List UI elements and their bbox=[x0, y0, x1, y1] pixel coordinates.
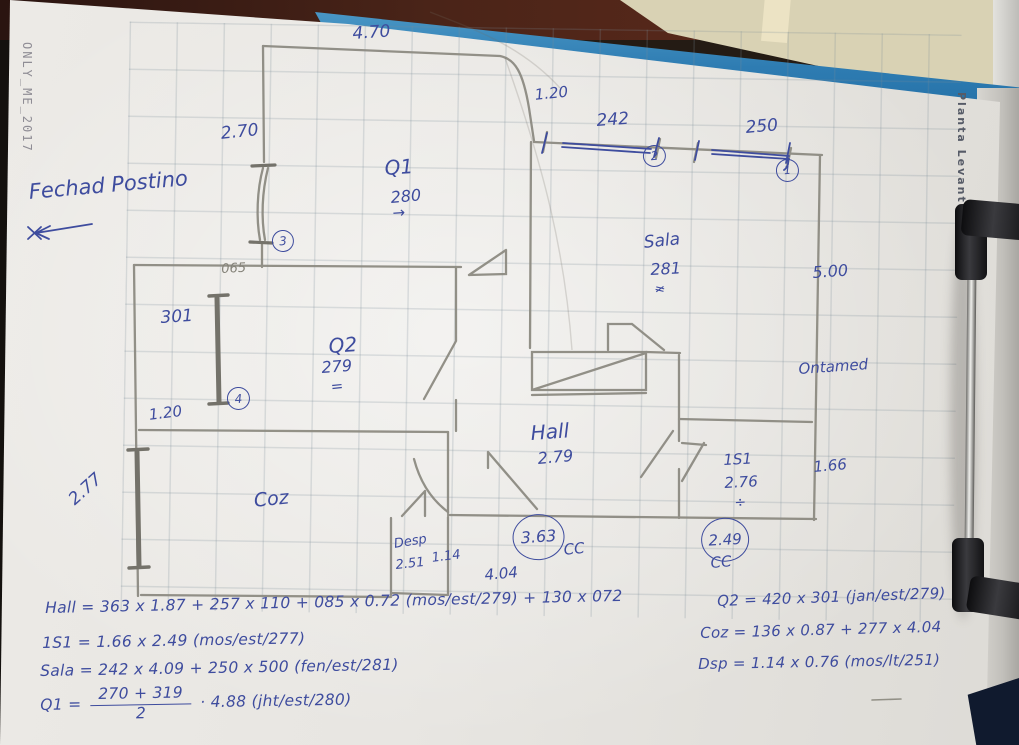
clamp-top-arm bbox=[961, 199, 1019, 241]
formula-q1: Q1 = 270 + 319 2 · 4.88 (jht/est/280) bbox=[40, 683, 352, 723]
label-dim-500: 5.00 bbox=[812, 263, 849, 281]
formula-q1-prefix: Q1 = bbox=[40, 697, 81, 713]
label-dim-065: 065 bbox=[221, 262, 246, 276]
label-hall-height: 2.79 bbox=[537, 448, 574, 467]
label-room-is1: 1S1 bbox=[723, 452, 752, 468]
label-desp-height: 2.51 bbox=[395, 556, 425, 572]
label-dim-301: 301 bbox=[160, 308, 194, 327]
label-room-q2: Q2 bbox=[328, 334, 358, 356]
formula-q1-suffix: · 4.88 (jht/est/280) bbox=[200, 692, 352, 710]
label-dim-166: 1.66 bbox=[813, 457, 848, 475]
label-dim-270: 2.70 bbox=[220, 122, 259, 143]
label-q2-height: 279 bbox=[321, 358, 353, 376]
label-sala-height: 281 bbox=[650, 260, 681, 278]
label-q2-mark: = bbox=[330, 379, 344, 395]
label-dim-120-left: 1.20 bbox=[148, 404, 183, 423]
watermark-only-me: ONLY_ME_2017 bbox=[20, 42, 34, 153]
label-dim-114: 1.14 bbox=[431, 548, 461, 564]
label-is1-height: 2.76 bbox=[724, 474, 758, 491]
label-room-hall: Hall bbox=[530, 420, 570, 443]
label-room-q1: Q1 bbox=[384, 156, 414, 178]
formula-dsp: Dsp = 1.14 x 0.76 (mos/lt/251) bbox=[698, 653, 940, 672]
label-room-sala: Sala bbox=[643, 231, 681, 252]
formula-q1-fraction: 270 + 319 2 bbox=[90, 685, 191, 722]
label-room-coz: Coz bbox=[253, 488, 290, 511]
photo-of-clipboard-floorplan: ONLY_ME_2017 Planta Levantamento Fechad … bbox=[0, 0, 1019, 745]
formula-q1-denominator: 2 bbox=[91, 704, 192, 722]
label-dim-250: 250 bbox=[745, 117, 779, 137]
label-dim-470: 4.70 bbox=[352, 23, 391, 43]
label-q1-arrow: → bbox=[392, 205, 406, 221]
label-dim-242: 242 bbox=[596, 111, 630, 130]
label-cc-right: CC bbox=[710, 554, 732, 571]
label-dim-120-top: 1.20 bbox=[534, 85, 569, 103]
label-is1-mark: ÷ bbox=[734, 495, 746, 510]
label-dim-404: 4.04 bbox=[484, 565, 519, 583]
label-cc-left: CC bbox=[563, 541, 585, 558]
formula-q1-numerator: 270 + 319 bbox=[90, 685, 191, 705]
